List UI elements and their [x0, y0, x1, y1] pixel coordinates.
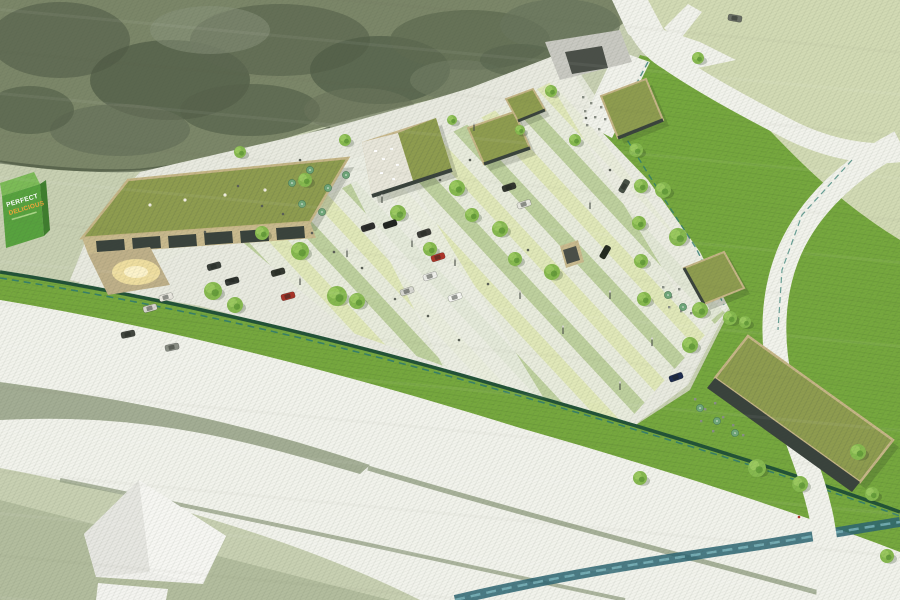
rendering-canvas: PERFECT DELICIOUS: [0, 0, 900, 600]
aerial-rendering-retail-park: PERFECT DELICIOUS: [0, 0, 900, 600]
pencil-hatch-overlay: [0, 0, 900, 600]
